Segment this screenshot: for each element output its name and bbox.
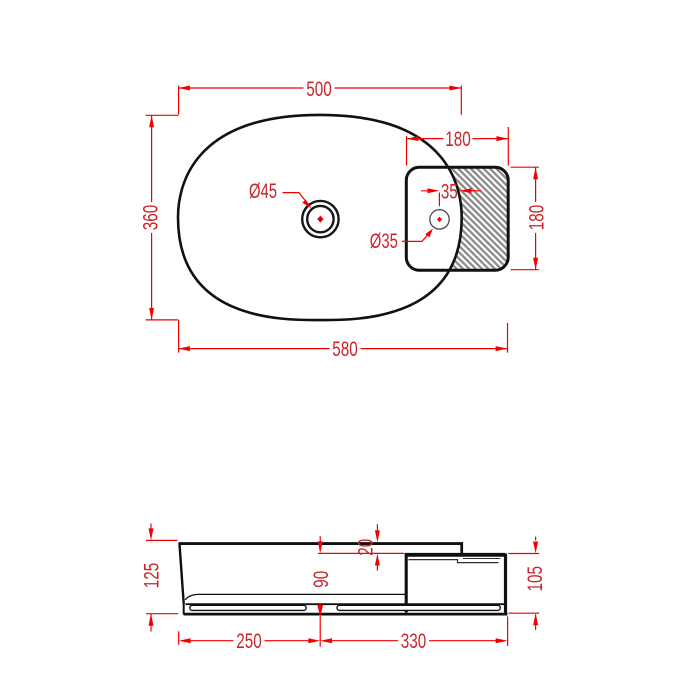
svg-text:125: 125 [139, 563, 163, 588]
svg-text:330: 330 [401, 628, 426, 652]
svg-text:180: 180 [524, 205, 548, 230]
svg-text:20: 20 [353, 539, 377, 556]
svg-text:580: 580 [332, 337, 357, 361]
svg-text:90: 90 [308, 571, 332, 588]
svg-text:35: 35 [441, 179, 458, 203]
svg-text:Ø45: Ø45 [249, 178, 277, 202]
svg-text:Ø35: Ø35 [370, 228, 398, 252]
svg-text:500: 500 [306, 76, 331, 100]
svg-text:105: 105 [523, 566, 547, 591]
svg-text:180: 180 [445, 127, 470, 151]
svg-text:250: 250 [236, 628, 261, 652]
svg-text:360: 360 [138, 205, 162, 230]
